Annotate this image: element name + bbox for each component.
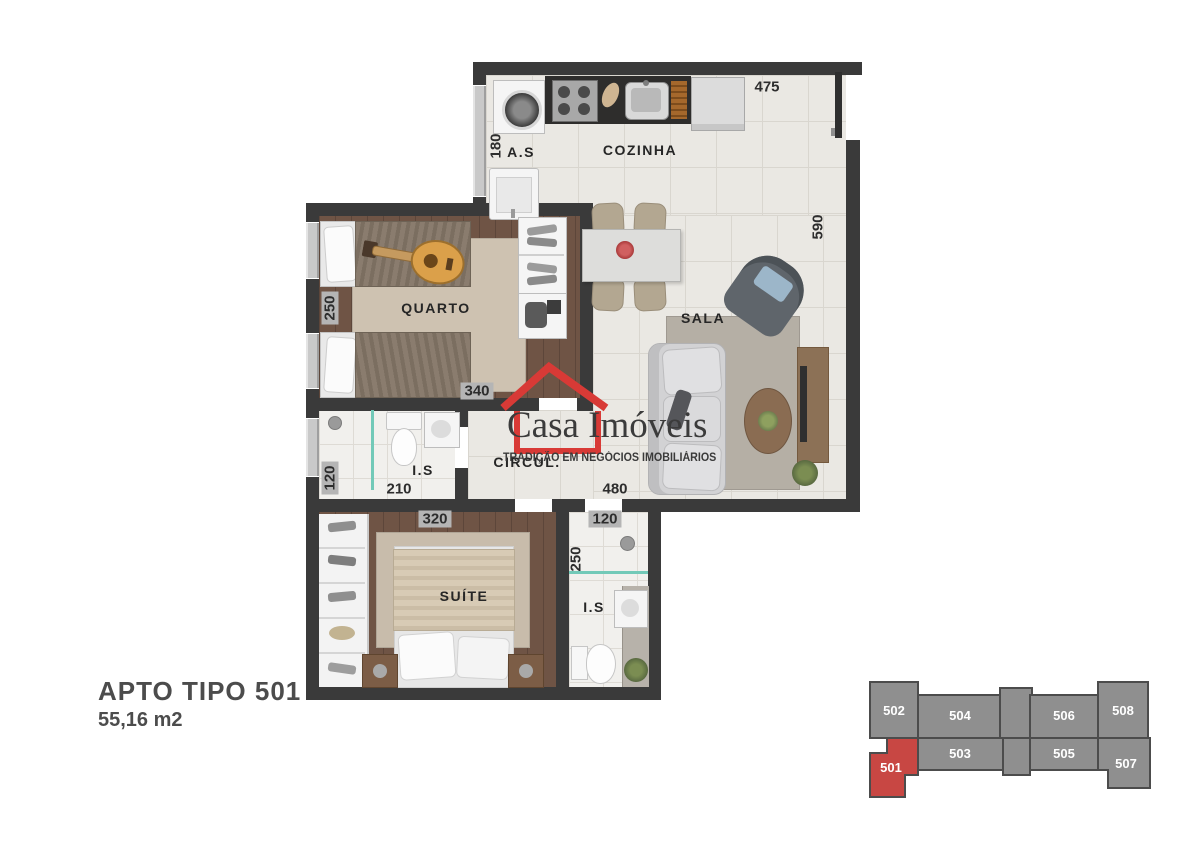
table-centerpiece <box>616 241 634 259</box>
dim-quarto-width: 340 <box>460 383 493 400</box>
fridge <box>691 77 745 131</box>
sink-1 <box>424 412 460 448</box>
armchair-pillow <box>752 265 794 304</box>
nightstand-right <box>508 654 544 688</box>
dim-is1-width: 210 <box>386 482 411 497</box>
wall-suite-right <box>556 512 569 687</box>
dim-as-depth: 180 <box>489 133 504 158</box>
counter-mat <box>671 81 687 119</box>
building-key-plan: 502 504 506 508 501 503 505 507 <box>865 668 1165 806</box>
wall-suite-left <box>306 499 319 700</box>
shower-glass-1 <box>371 410 374 490</box>
bedroom-wardrobe <box>518 217 567 295</box>
window-bathroom1 <box>306 418 319 477</box>
logo-word-imoveis: Imóveis <box>588 405 707 446</box>
dim-suite-width: 320 <box>418 511 451 528</box>
bath2-plant <box>624 658 648 682</box>
bed-pillow <box>323 225 357 283</box>
dim-circul-width: 480 <box>602 482 627 497</box>
wall-mid-a <box>306 499 515 512</box>
cutting-board <box>598 80 622 110</box>
apartment-area: 55,16 m2 <box>98 709 301 732</box>
dim-is2-height: 250 <box>569 546 584 571</box>
stove <box>552 80 598 122</box>
single-bed-2 <box>320 332 470 398</box>
bed-pillow <box>397 631 456 681</box>
laundry-tub-basin <box>496 177 532 213</box>
laundry-tub-faucet <box>511 209 515 218</box>
dim-sala-height: 590 <box>811 214 826 239</box>
wall-bedroom-top <box>306 203 593 216</box>
logo-tagline: TRADIÇÃO EM NEGÓCIOS IMOBILIÁRIOS <box>503 452 696 464</box>
dining-table <box>582 229 681 282</box>
wall-suite-bottom <box>306 687 661 700</box>
wall-right-above-door <box>846 62 860 72</box>
wall-mid-b <box>552 499 585 512</box>
bed-blanket <box>355 332 471 398</box>
shower-head-1 <box>328 416 342 430</box>
window-bedroom-1 <box>306 222 319 279</box>
logo-wordmark: Casa Imóveis <box>507 404 707 447</box>
dim-quarto-height: 250 <box>322 291 339 324</box>
double-bed <box>394 546 514 688</box>
shower-head-2 <box>620 536 635 551</box>
keyplan-label-502: 502 <box>883 703 905 718</box>
laundry-tub <box>489 168 539 220</box>
wall-top <box>473 62 862 75</box>
tv <box>800 366 807 442</box>
floor-plan-page: A.S COZINHA SALA QUARTO I.S CIRCUL. SUÍT… <box>0 0 1200 848</box>
toilet-2-bowl <box>586 644 616 684</box>
label-cozinha: COZINHA <box>603 142 677 158</box>
keyplan-label-508: 508 <box>1112 703 1134 718</box>
washing-machine <box>493 80 545 134</box>
dim-is1-height: 120 <box>322 461 339 494</box>
label-suite: SUÍTE <box>440 588 489 604</box>
wall-bath2-right <box>648 499 661 700</box>
bed-pillow <box>456 636 510 681</box>
entrance-door-leaf <box>835 72 842 138</box>
label-sala: SALA <box>681 310 725 326</box>
window-bedroom-2 <box>306 333 319 389</box>
desk-chair <box>525 302 547 328</box>
apartment-name: APTO TIPO 501 <box>98 676 301 707</box>
logo-word-casa: Casa <box>507 405 579 446</box>
nightstand-left <box>362 654 398 688</box>
keyplan-label-506: 506 <box>1053 708 1075 723</box>
washer-drum <box>502 90 542 130</box>
keyplan-label-504: 504 <box>949 708 971 723</box>
title-block: APTO TIPO 501 55,16 m2 <box>98 676 301 732</box>
coffee-table <box>744 388 792 454</box>
keyplan-label-507: 507 <box>1115 756 1137 771</box>
label-is2: I.S <box>583 599 605 615</box>
keyplan-label-505: 505 <box>1053 746 1075 761</box>
coffee-table-plant <box>758 411 778 431</box>
label-quarto: QUARTO <box>401 300 470 316</box>
entrance-door-handle <box>831 128 835 136</box>
dim-cozinha-width: 475 <box>754 80 779 95</box>
sink-2 <box>614 590 648 628</box>
bed-pillow <box>323 336 357 394</box>
keyplan-core-top <box>1000 688 1032 738</box>
dim-is2-width: 120 <box>588 511 621 528</box>
keyplan-core-bottom <box>1003 738 1030 775</box>
bedroom-desk <box>518 293 567 339</box>
agency-logo: Casa Imóveis TRADIÇÃO EM NEGÓCIOS IMOBIL… <box>495 358 715 480</box>
wall-right <box>846 140 860 512</box>
toilet-1-bowl <box>391 428 417 466</box>
kitchen-sink <box>625 82 669 120</box>
keyplan-label-501: 501 <box>880 760 902 775</box>
kitchen-counter <box>545 76 691 124</box>
keyplan-label-503: 503 <box>949 746 971 761</box>
living-plant <box>792 460 818 486</box>
tv-console <box>797 347 829 463</box>
window-service-area <box>473 85 486 197</box>
label-is1: I.S <box>412 462 434 478</box>
label-as: A.S <box>507 144 535 160</box>
